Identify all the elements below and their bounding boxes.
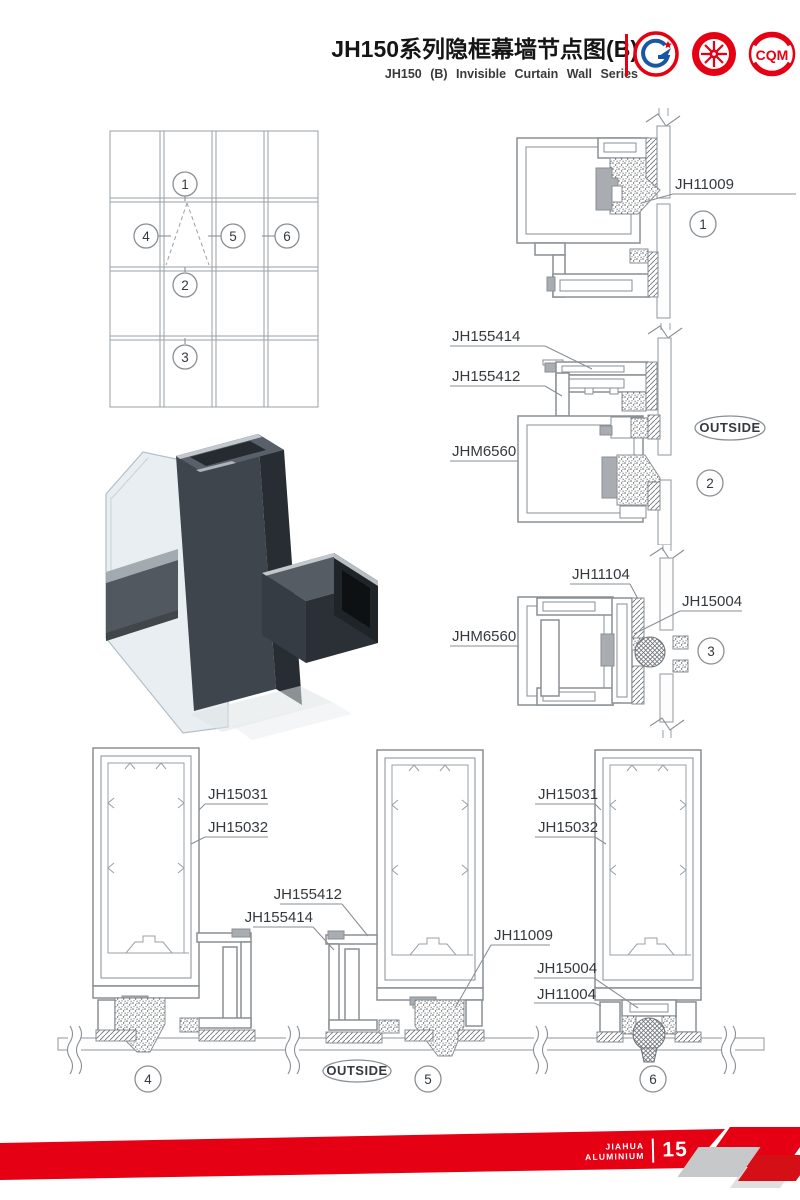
label-jh11104: JH11104 [570,566,638,599]
part-label-text: JH15004 [682,593,742,610]
callout-5-number: 5 [229,229,237,244]
detail-1-number: 1 [699,217,707,232]
rubber-gasket-rod [635,637,665,667]
part-label-text: JH155414 [452,328,520,345]
detail-4-drawing: JH15031 JH15032 [93,748,268,1052]
outside-label: OUTSIDE [326,1063,387,1078]
sealant-stipple [673,660,688,672]
part-label-text: JH155412 [452,368,520,385]
vent-opening-dashes [166,203,209,265]
detail-6-number: 6 [649,1072,657,1087]
detail-1-section: JH11009 1 [480,108,800,323]
sealant-stipple [673,636,688,649]
label-jhm6560: JHM6560 [450,443,518,461]
profile-3d-render [75,405,415,745]
detail-4-number: 4 [144,1072,152,1087]
part-label-text: JHM6560 [452,628,516,645]
part-label-text: JH15031 [208,786,268,803]
callout-4-number: 4 [142,229,150,244]
outside-marker: OUTSIDE [695,416,765,440]
page-title: JH150系列隐框幕墙节点图(B) [331,30,638,64]
spacer-slot [612,186,622,202]
part-label-text: JH155414 [245,909,313,926]
callout-2-number: 2 [181,278,189,293]
label-jh155414: JH155414 [245,909,334,950]
curtain-wall-grid [110,131,318,407]
footer-separator [652,1139,655,1163]
outside-label: OUTSIDE [699,420,760,435]
callout-6-number: 6 [283,229,291,244]
brand-line-2: ALUMINIUM [585,1151,645,1162]
label-jh15004: JH15004 [634,593,742,634]
detail-2-section: JH155414 JH155412 JHM6560 OUTSIDE 2 [440,323,800,545]
cqm-logo-text: CQM [756,47,789,63]
label-jhm6560: JHM6560 [450,628,518,646]
callout-1-number: 1 [181,177,189,192]
sealant-stipple [622,392,646,411]
bottom-details: JH15031 JH15032 [40,740,800,1100]
detail-2-number: 2 [706,476,714,491]
header-title-block: JH150系列隐框幕墙节点图(B) JH150 (B) Invisible Cu… [331,30,638,81]
brand-name: JIAHUA ALUMINIUM [585,1141,645,1162]
part-label-text: JH11104 [572,566,630,583]
outside-marker: OUTSIDE [323,1060,391,1082]
label-jh15031: JH15031 [535,786,601,810]
page-number: 15 [662,1138,688,1163]
detail-3-number: 3 [707,644,715,659]
part-label-text: JH11009 [494,927,553,944]
detail-3-section: JH11104 JH15004 JHM6560 3 [440,545,800,740]
header-divider [625,34,628,76]
label-jh15032: JH15032 [191,819,268,844]
glazing-tape-hatch [632,666,644,704]
callout-3-number: 3 [181,350,189,365]
part-label-text: JH15032 [208,819,268,836]
quality-seal-logo [690,30,738,78]
part-label-text: JH11009 [675,176,734,193]
part-label-text: JH15004 [537,960,597,977]
part-label-text: JH155412 [274,886,342,903]
gb-certification-logo [632,30,680,78]
transom-profile [535,243,658,297]
glazing-tape-hatch [646,362,657,410]
part-label-text: JHM6560 [452,443,516,460]
rubber-gasket-rod [633,1018,665,1050]
part-label-text: JH15031 [538,786,598,803]
detail-6-drawing: JH15031 JH15032 JH15004 JH11004 [534,750,701,1062]
page-subtitle: JH150 (B) Invisible Curtain Wall Series [331,67,638,81]
detail-5-number: 5 [424,1072,432,1087]
elevation-diagram: 1 4 5 6 2 3 [90,120,350,410]
part-label-text: JH15032 [538,819,598,836]
footer-band: JIAHUA ALUMINIUM 15 [0,1126,800,1186]
footer-brand-block: JIAHUA ALUMINIUM 15 [585,1138,688,1164]
part-label-text: JH11004 [537,986,596,1003]
catalog-page: JH150系列隐框幕墙节点图(B) JH150 (B) Invisible Cu… [0,0,800,1200]
header-logos: CQM [632,30,796,78]
label-jh11004: JH11004 [534,986,601,1006]
label-jh15031: JH15031 [199,786,268,810]
cqm-logo: CQM [748,30,796,78]
mullion-box-profile [518,597,613,705]
